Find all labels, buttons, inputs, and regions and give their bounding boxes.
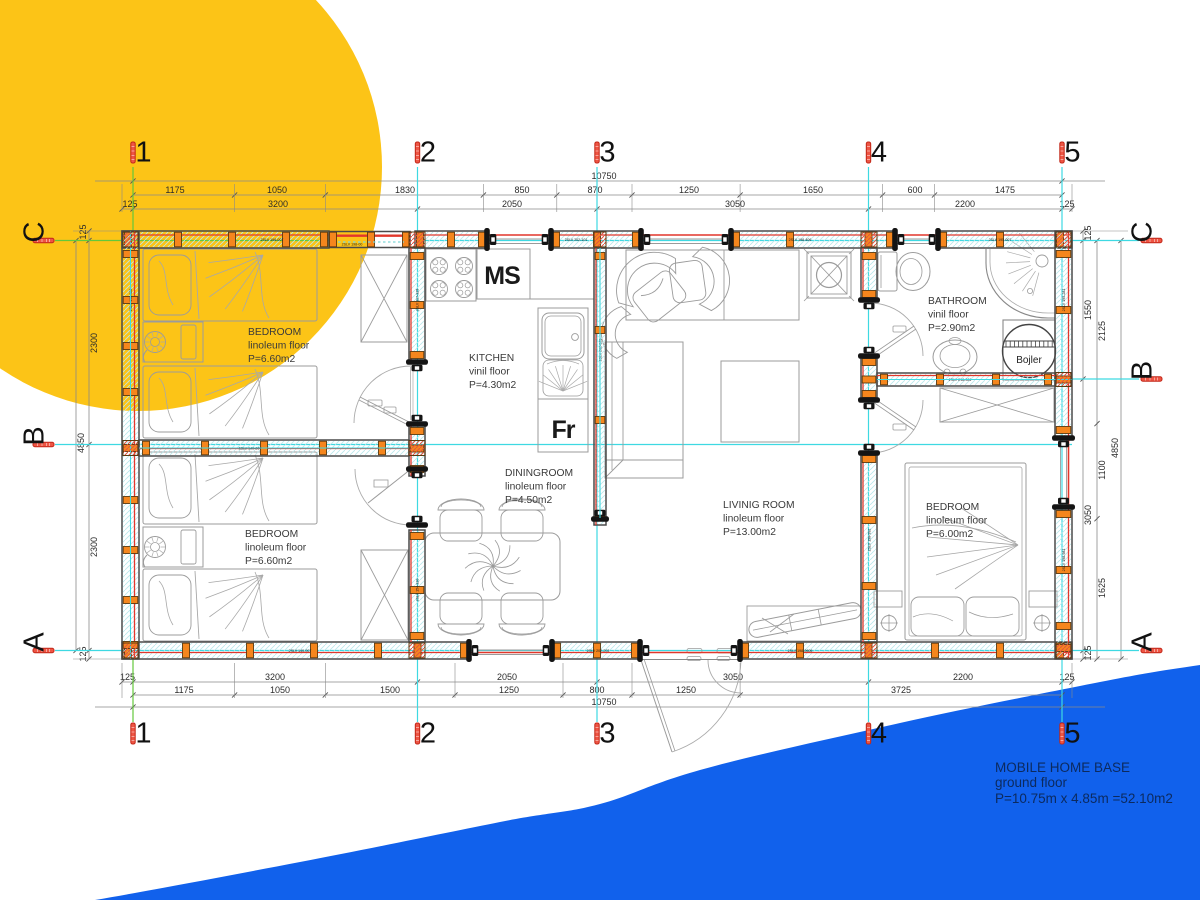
svg-text:2SLV 117-325: 2SLV 117-325 (416, 289, 420, 311)
svg-text:2: 2 (420, 718, 436, 750)
svg-text:LIVINIG ROOM: LIVINIG ROOM (723, 500, 795, 511)
svg-text:P=13.00m2: P=13.00m2 (723, 527, 776, 538)
svg-text:1475: 1475 (995, 185, 1015, 195)
svg-text:2SLV 218-981: 2SLV 218-981 (949, 378, 972, 382)
svg-text:1175: 1175 (174, 685, 193, 695)
svg-text:1500: 1500 (380, 685, 400, 695)
svg-text:A: A (19, 632, 51, 652)
svg-text:125: 125 (1083, 645, 1093, 660)
svg-text:vinil floor: vinil floor (469, 367, 510, 378)
svg-text:600: 600 (907, 185, 922, 195)
svg-text:B: B (19, 426, 51, 445)
svg-text:10750: 10750 (591, 697, 616, 707)
svg-text:1250: 1250 (679, 185, 699, 195)
svg-text:2: 2 (420, 137, 436, 169)
svg-text:4850: 4850 (76, 433, 86, 453)
svg-text:3200: 3200 (265, 672, 285, 682)
svg-text:P=10.75m x 4.85m =52.10m2: P=10.75m x 4.85m =52.10m2 (995, 791, 1173, 806)
svg-text:4850: 4850 (1110, 438, 1120, 458)
svg-text:1100: 1100 (1097, 460, 1107, 479)
svg-text:125: 125 (78, 224, 88, 239)
svg-text:linoleum floor: linoleum floor (248, 341, 310, 352)
svg-text:2SLV 198-981: 2SLV 198-981 (1062, 549, 1066, 572)
svg-text:125: 125 (122, 199, 137, 209)
svg-text:ground floor: ground floor (995, 775, 1068, 790)
svg-text:1: 1 (135, 137, 151, 169)
svg-text:1050: 1050 (267, 185, 287, 195)
svg-text:2SLV 202-525: 2SLV 202-525 (599, 339, 603, 362)
svg-text:MS: MS (484, 262, 520, 290)
svg-text:A: A (1127, 632, 1159, 652)
svg-text:870: 870 (587, 185, 602, 195)
svg-text:2SLV 140-007: 2SLV 140-007 (239, 447, 262, 451)
svg-text:3050: 3050 (1083, 505, 1093, 525)
svg-text:P=6.00m2: P=6.00m2 (926, 529, 973, 540)
svg-text:linoleum floor: linoleum floor (926, 516, 988, 527)
svg-text:3050: 3050 (725, 199, 745, 209)
svg-text:MOBILE HOME BASE: MOBILE HOME BASE (995, 760, 1130, 775)
svg-text:P=2.90m2: P=2.90m2 (928, 323, 975, 334)
svg-text:1550: 1550 (1083, 300, 1093, 320)
svg-text:Bojler: Bojler (1016, 355, 1042, 366)
svg-text:1625: 1625 (1097, 578, 1107, 598)
svg-text:P=4.30m2: P=4.30m2 (469, 380, 516, 391)
svg-text:2SLV 198-406: 2SLV 198-406 (789, 238, 812, 242)
svg-text:2SLV 198-992: 2SLV 198-992 (868, 529, 872, 552)
svg-text:3: 3 (599, 137, 615, 169)
svg-text:BEDROOM: BEDROOM (248, 327, 301, 338)
svg-text:850: 850 (514, 185, 529, 195)
svg-text:DININGROOM: DININGROOM (505, 468, 573, 479)
svg-text:10750: 10750 (591, 171, 616, 181)
svg-text:1: 1 (135, 718, 151, 750)
svg-text:2SLV 198-00: 2SLV 198-00 (342, 243, 363, 247)
svg-text:2SLV 154-320: 2SLV 154-320 (416, 579, 420, 602)
svg-text:linoleum floor: linoleum floor (723, 514, 785, 525)
svg-text:1650: 1650 (803, 185, 823, 195)
svg-text:BATHROOM: BATHROOM (928, 296, 987, 307)
svg-text:2SLV 198-382: 2SLV 198-382 (129, 289, 133, 312)
svg-text:2050: 2050 (502, 199, 522, 209)
svg-text:2200: 2200 (955, 199, 975, 209)
svg-text:vinil floor: vinil floor (928, 310, 969, 321)
svg-text:P=4.50m2: P=4.50m2 (505, 495, 552, 506)
svg-text:2050: 2050 (497, 672, 517, 682)
svg-text:BEDROOM: BEDROOM (245, 529, 298, 540)
svg-text:3200: 3200 (268, 199, 288, 209)
svg-text:2300: 2300 (89, 537, 99, 557)
svg-text:C: C (19, 222, 51, 243)
svg-text:4: 4 (871, 137, 887, 169)
svg-text:BEDROOM: BEDROOM (926, 502, 979, 513)
svg-text:C: C (1127, 222, 1159, 243)
svg-text:B: B (1127, 361, 1159, 380)
svg-text:1830: 1830 (395, 185, 415, 195)
svg-text:4: 4 (871, 718, 887, 750)
svg-text:5: 5 (1064, 137, 1080, 169)
svg-text:KITCHEN: KITCHEN (469, 353, 514, 364)
svg-text:1250: 1250 (676, 685, 696, 695)
svg-text:2125: 2125 (1097, 321, 1107, 341)
svg-text:linoleum floor: linoleum floor (505, 482, 567, 493)
svg-text:linoleum floor: linoleum floor (245, 543, 307, 554)
svg-text:125: 125 (1083, 225, 1093, 240)
svg-text:1175: 1175 (165, 185, 184, 195)
svg-text:P=6.60m2: P=6.60m2 (248, 354, 295, 365)
svg-text:Fr: Fr (552, 416, 576, 444)
svg-text:2200: 2200 (953, 672, 973, 682)
svg-text:5: 5 (1064, 718, 1080, 750)
svg-text:2SLV 198-0606: 2SLV 198-0606 (788, 649, 813, 653)
svg-text:2SLV 202-101: 2SLV 202-101 (565, 238, 588, 242)
svg-text:1250: 1250 (499, 685, 519, 695)
svg-text:2SLV 202-202: 2SLV 202-202 (587, 649, 610, 653)
svg-text:2300: 2300 (89, 333, 99, 353)
svg-text:P=6.60m2: P=6.60m2 (245, 556, 292, 567)
svg-text:2SLV 140-007: 2SLV 140-007 (289, 649, 312, 653)
svg-text:2SLV 198-007: 2SLV 198-007 (261, 238, 284, 242)
svg-text:2SLV 195-281: 2SLV 195-281 (1062, 289, 1066, 312)
svg-text:3725: 3725 (891, 685, 911, 695)
svg-text:1050: 1050 (270, 685, 290, 695)
svg-text:2SLV 195-007: 2SLV 195-007 (989, 238, 1012, 242)
svg-text:3: 3 (599, 718, 615, 750)
